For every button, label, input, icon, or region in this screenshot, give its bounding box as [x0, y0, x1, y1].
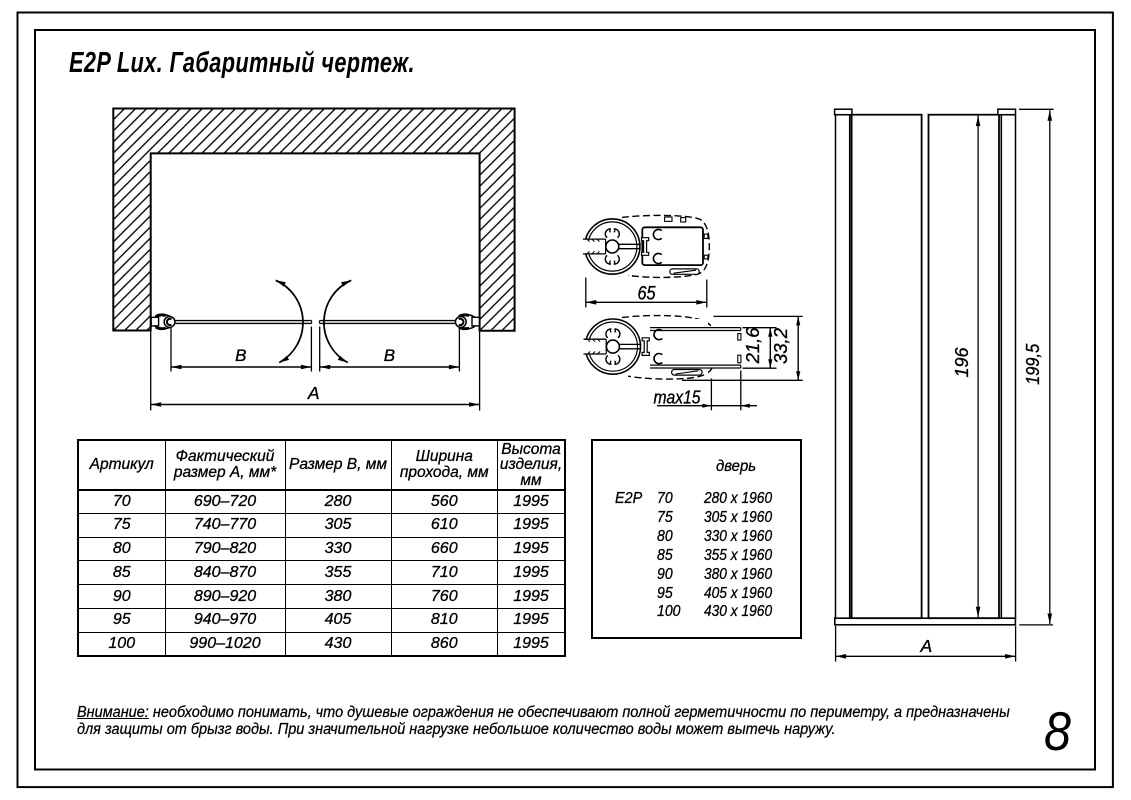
svg-text:199,5: 199,5 — [1023, 343, 1043, 385]
svg-text:33,2: 33,2 — [771, 328, 791, 364]
svg-text:196: 196 — [952, 347, 972, 378]
svg-text:A: A — [307, 383, 320, 403]
svg-text:max15: max15 — [654, 387, 702, 408]
svg-text:B: B — [235, 346, 246, 365]
svg-text:B: B — [384, 346, 395, 365]
svg-text:21,6: 21,6 — [743, 326, 763, 364]
svg-text:65: 65 — [638, 282, 656, 304]
svg-text:A: A — [919, 636, 932, 656]
